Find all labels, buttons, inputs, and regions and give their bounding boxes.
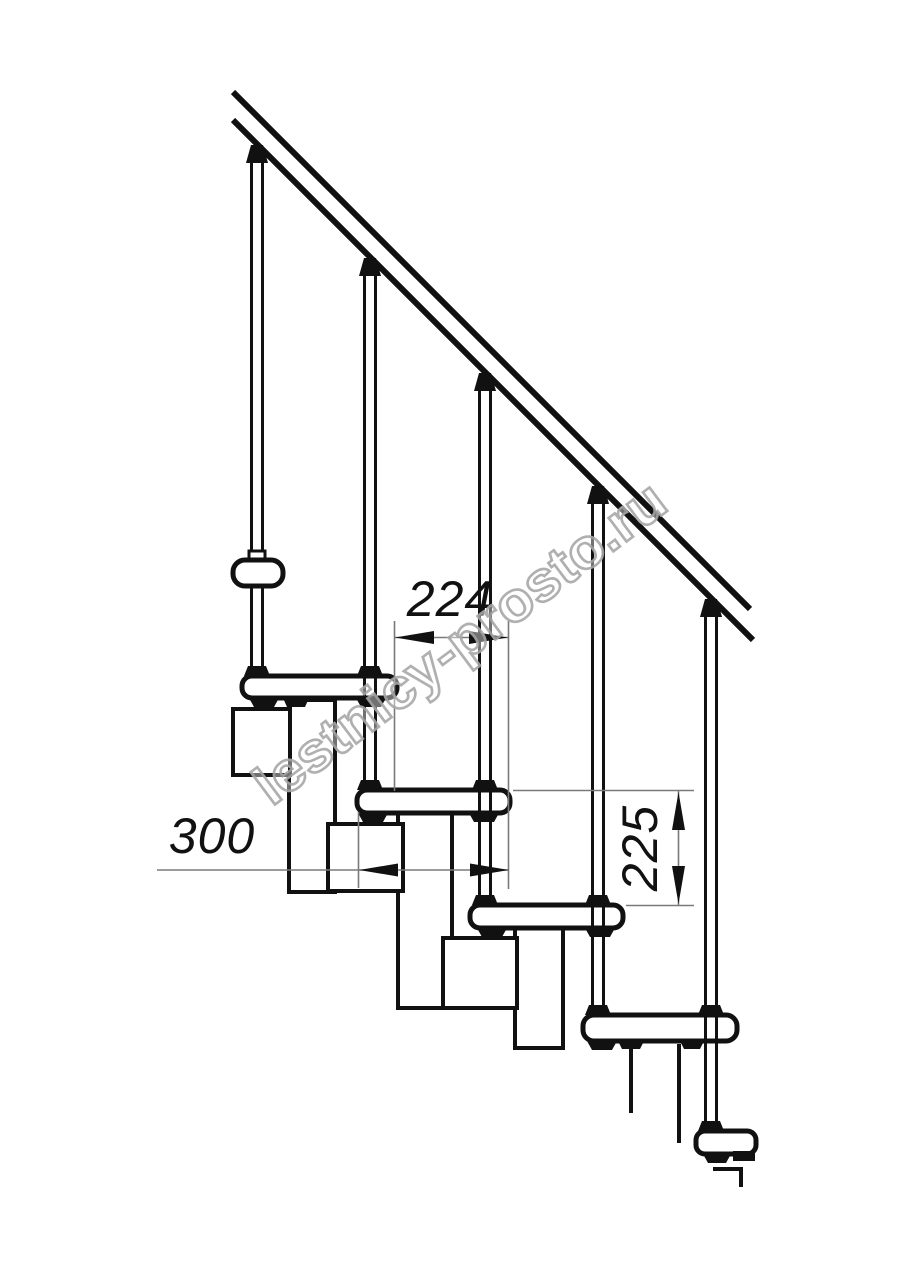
collar-joint (698, 1005, 724, 1015)
tread-4 (583, 1015, 737, 1041)
dimension-label-rise: 225 (612, 805, 668, 892)
bolt-tab (587, 1041, 617, 1050)
floor-anchor-band (733, 1151, 755, 1161)
support-neck-3 (515, 921, 563, 1048)
clamp-body (233, 560, 283, 586)
floor-mount-plate (696, 1131, 756, 1154)
bolt-tab (477, 928, 507, 937)
collar-joint (472, 780, 498, 790)
collar-joint (698, 1121, 724, 1131)
collar-joint (472, 895, 498, 905)
bolt-tab (585, 928, 615, 937)
bolt-tab (469, 813, 499, 822)
tread-2 (357, 790, 510, 813)
bolt-tab (249, 698, 279, 707)
staircase-drawing: 224 300 225 lestnicy-prosto.ru (0, 0, 914, 1280)
bolt-tab (618, 1041, 644, 1049)
support-block-2 (328, 824, 403, 891)
bolt-tab (283, 698, 309, 707)
dimension-label-depth: 300 (169, 808, 255, 864)
bolt-tab (358, 813, 388, 822)
collar-joint (585, 1005, 611, 1015)
collar-joint (244, 666, 270, 676)
tread-3 (470, 905, 623, 928)
collar-joint (585, 895, 611, 905)
support-block-3 (443, 938, 517, 1008)
drawing-canvas: 224 300 225 lestnicy-prosto.ru (0, 0, 914, 1280)
collar-joint (357, 780, 383, 790)
bolt-tab (680, 1041, 704, 1049)
